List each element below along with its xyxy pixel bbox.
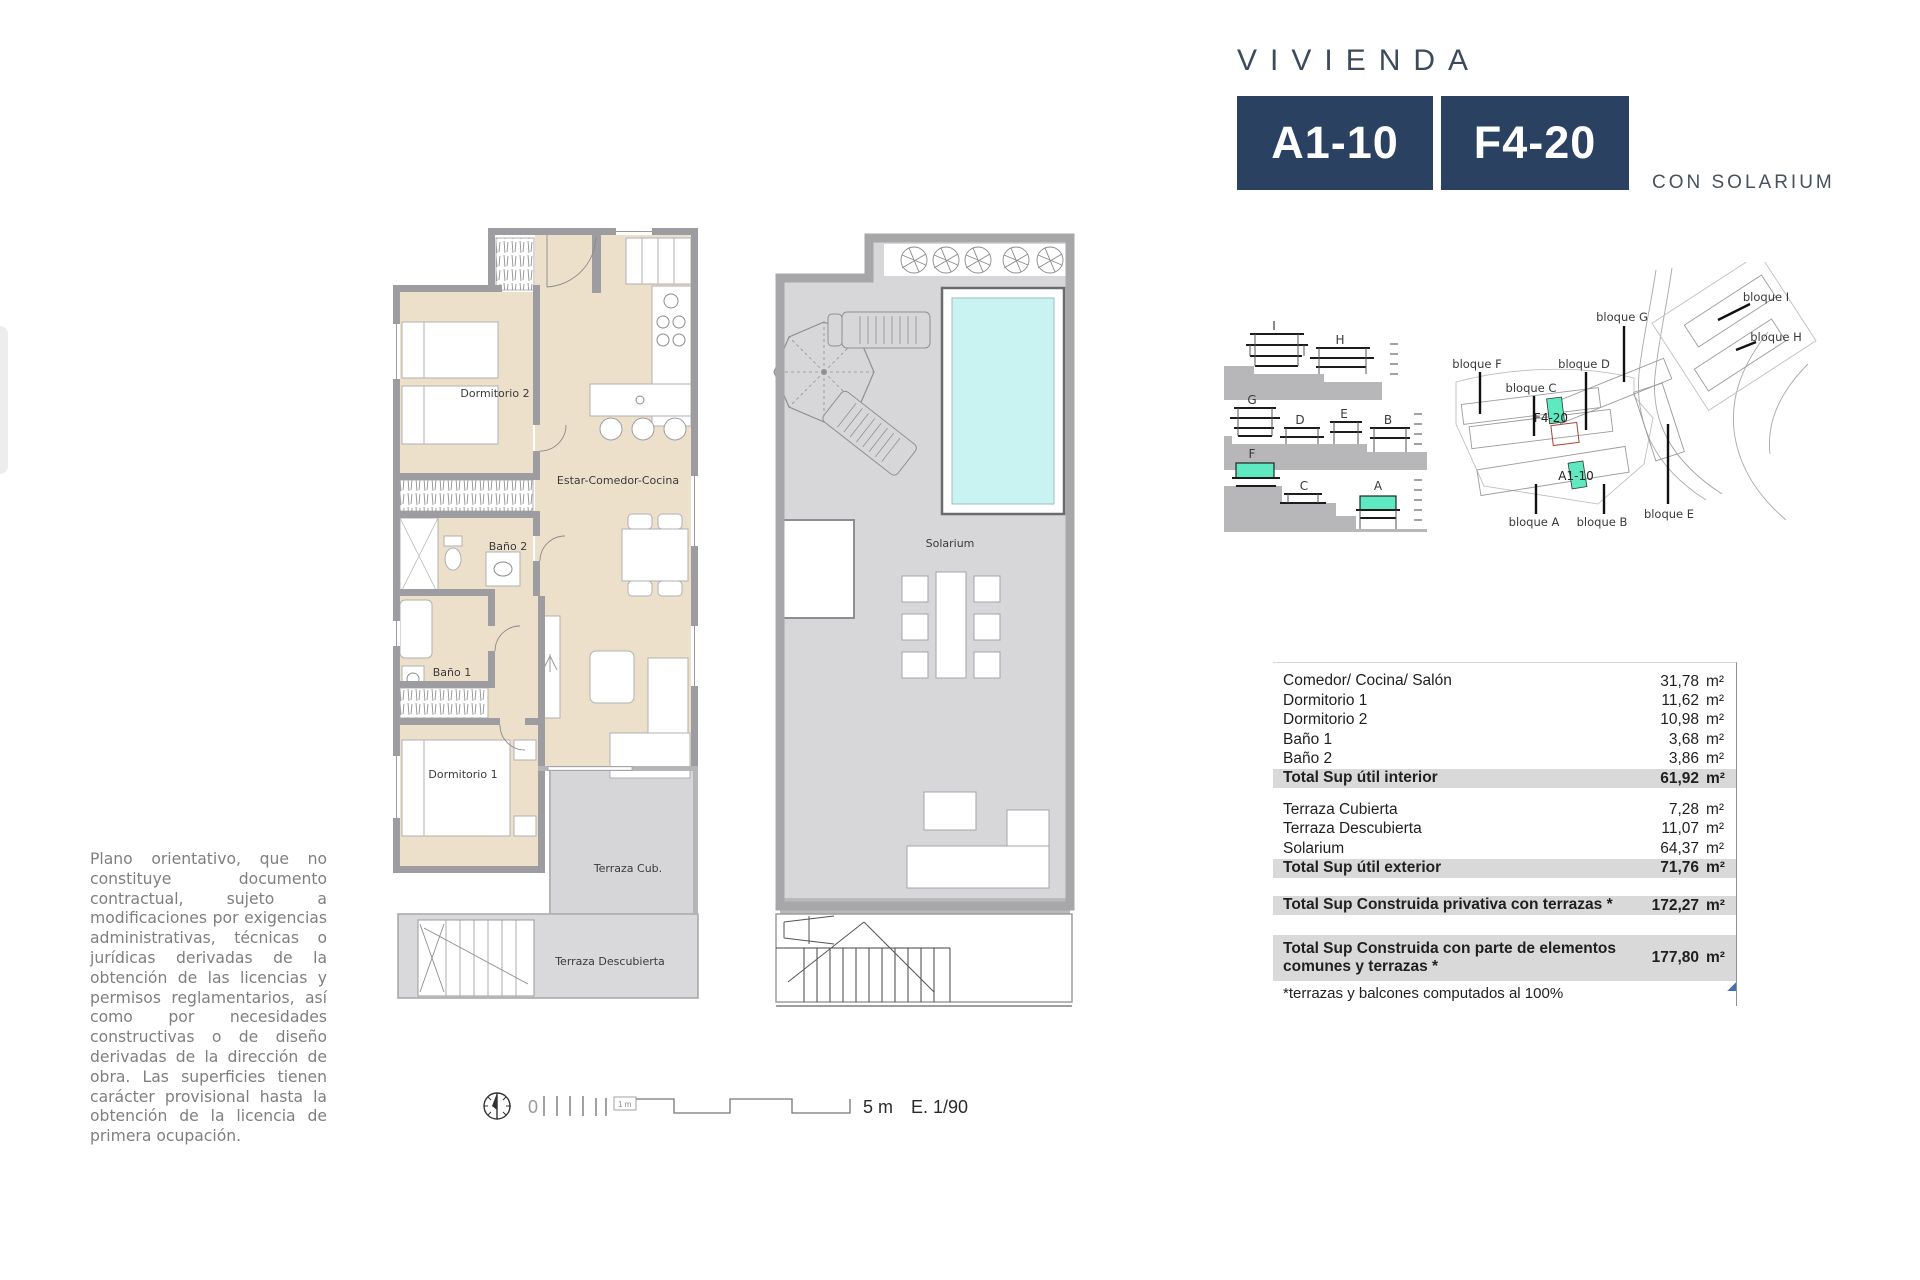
- table-icon: [924, 792, 976, 830]
- dining-table-icon: [622, 529, 688, 581]
- chair-icon: [902, 652, 928, 678]
- room-label-bano2: Baño 2: [489, 540, 527, 553]
- compass-icon: [484, 1093, 511, 1119]
- block-label: D: [1295, 413, 1304, 427]
- stairs-icon: [418, 920, 534, 996]
- toilet-icon: [445, 548, 461, 570]
- tree-icon: [1003, 247, 1029, 273]
- scale-one-meter-label: 1 m: [618, 1100, 632, 1109]
- tree-icon: [1037, 247, 1063, 273]
- chair-icon: [902, 614, 928, 640]
- chair-icon: [902, 576, 928, 602]
- closet-icon: [496, 238, 534, 290]
- scale-ratio: E. 1/90: [911, 1097, 968, 1117]
- table-row-total-privativa: Total Sup Construida privativa con terra…: [1273, 896, 1736, 915]
- table-row: Dormitorio 210,98m²: [1273, 711, 1736, 730]
- burner-icon: [657, 316, 669, 328]
- room-label-estar: Estar-Comedor-Cocina: [557, 474, 679, 487]
- solarium-stairs: [776, 898, 1072, 1006]
- block-label: bloque C: [1506, 381, 1557, 395]
- unit-badge-a1-10: A1-10: [1237, 96, 1433, 190]
- site-plan: bloque I bloque H bloque G bloque D bloq…: [1448, 262, 1818, 562]
- table-row: Baño 13,68m²: [1273, 730, 1736, 749]
- burner-icon: [673, 334, 685, 346]
- table-footnote: *terrazas y balcones computados al 100%: [1273, 981, 1736, 1002]
- chair-icon: [974, 576, 1000, 602]
- elevation-diagrams: I H G D E B: [1222, 320, 1434, 532]
- table-row: Comedor/ Cocina/ Salón31,78m²: [1273, 672, 1736, 691]
- burner-icon: [657, 334, 669, 346]
- block-label: F: [1249, 447, 1256, 461]
- unit-badge-f4-20: F4-20: [1441, 96, 1629, 190]
- block-label: bloque A: [1509, 515, 1560, 529]
- chair-icon: [658, 581, 682, 596]
- table-row: Dormitorio 111,62m²: [1273, 691, 1736, 710]
- elevation-row-1: I H: [1224, 320, 1398, 400]
- sun-lounger-icon: [828, 312, 930, 348]
- page-title: VIVIENDA: [1237, 44, 1481, 78]
- disclaimer-text: Plano orientativo, que no constituye doc…: [90, 850, 327, 1147]
- tree-icon: [965, 247, 991, 273]
- tree-icon: [933, 247, 959, 273]
- stair-void: [780, 520, 854, 618]
- unit-secondary-label: F4-20: [1474, 117, 1597, 169]
- plan-sheet: VIVIENDA A1-10 F4-20 CON SOLARIUM: [0, 0, 1920, 1280]
- floor-plan-interior: Dormitorio 2 Estar-Comedor-Cocina Baño 2…: [390, 226, 708, 1018]
- block-label: B: [1384, 413, 1392, 427]
- block-label: bloque H: [1750, 330, 1802, 344]
- chair-icon: [628, 514, 652, 529]
- table-row: Baño 23,86m²: [1273, 750, 1736, 769]
- table-row: Terraza Cubierta7,28m²: [1273, 800, 1736, 819]
- chair-icon: [974, 652, 1000, 678]
- table-row-total-exterior: Total Sup útil exterior71,76m²: [1273, 859, 1736, 878]
- armchair-icon: [590, 651, 634, 703]
- table-row-total-interior: Total Sup útil interior61,92m²: [1273, 769, 1736, 788]
- room-label-dormitorio1: Dormitorio 1: [428, 768, 497, 781]
- tree-icon: [901, 247, 927, 273]
- chair-icon: [974, 614, 1000, 640]
- stool-icon: [664, 418, 686, 440]
- leader-lines: [1480, 304, 1756, 514]
- toilet-icon: [444, 536, 462, 546]
- table-icon: [936, 572, 966, 678]
- table-row: Terraza Descubierta11,07m²: [1273, 820, 1736, 839]
- outlined-unit: [1551, 422, 1579, 445]
- burner-icon: [673, 316, 685, 328]
- block-label: bloque B: [1577, 515, 1628, 529]
- scale-one-meter-box: 1 m: [614, 1097, 636, 1110]
- room-label-bano1: Baño 1: [433, 666, 471, 679]
- site-roads: [1638, 268, 1808, 520]
- unit-primary-label: A1-10: [1271, 117, 1399, 169]
- scale-five-meters: 5 m: [863, 1097, 893, 1117]
- room-label-dormitorio2: Dormitorio 2: [460, 387, 529, 400]
- subtitle-con-solarium: CON SOLARIUM: [1652, 172, 1835, 194]
- sofa-icon: [648, 658, 688, 733]
- planting-strip: [884, 244, 1068, 276]
- scale-ticks: [544, 1096, 606, 1116]
- block-label: H: [1335, 333, 1344, 347]
- sofa-icon: [610, 733, 690, 778]
- unit-label-f4-20: F4-20: [1534, 411, 1568, 425]
- scale-zero: 0: [528, 1097, 538, 1117]
- room-label-terraza-desc: Terraza Descubierta: [554, 955, 665, 968]
- nightstand: [514, 816, 536, 836]
- room-label-solarium: Solarium: [926, 537, 975, 550]
- sink-icon: [664, 294, 678, 308]
- pergola-dining-set: [902, 572, 1000, 678]
- wardrobe-icon: [400, 688, 488, 718]
- chair-icon: [628, 581, 652, 596]
- page-edge-decoration: [0, 326, 8, 474]
- floor-plan-solarium: Solarium: [764, 222, 1084, 1017]
- block-label: G: [1247, 393, 1256, 407]
- block-label: bloque I: [1743, 290, 1789, 304]
- room-label-terraza-cub: Terraza Cub.: [593, 862, 662, 875]
- highlighted-unit-f: [1236, 463, 1274, 478]
- pool: [942, 288, 1064, 514]
- block-label: I: [1272, 320, 1276, 333]
- highlighted-unit-a: [1360, 496, 1396, 510]
- wardrobe-icon: [400, 480, 533, 511]
- bed-icon: [402, 740, 510, 836]
- block-label: bloque G: [1596, 310, 1648, 324]
- block-label: E: [1340, 407, 1348, 421]
- area-table: Comedor/ Cocina/ Salón31,78m² Dormitorio…: [1273, 662, 1737, 1006]
- scale-bar-steps: [636, 1099, 850, 1113]
- bed-icon: [402, 322, 498, 378]
- bathtub-icon: [400, 600, 432, 658]
- block-label: C: [1300, 479, 1308, 493]
- block-label: bloque E: [1644, 507, 1694, 521]
- stool-icon: [600, 418, 622, 440]
- site-block-labels: bloque I bloque H bloque G bloque D bloq…: [1452, 290, 1801, 529]
- stool-icon: [632, 418, 654, 440]
- table-row: Solarium64,37m²: [1273, 839, 1736, 858]
- block-label: bloque F: [1452, 357, 1501, 371]
- unit-label-a1-10: A1-10: [1558, 469, 1593, 483]
- chair-icon: [658, 514, 682, 529]
- block-label: bloque D: [1558, 357, 1610, 371]
- table-row-total-comunes: Total Sup Construida con parte de elemen…: [1273, 935, 1736, 981]
- block-label: A: [1374, 479, 1383, 493]
- scale-bar: 0 1 m 5 m E. 1/90: [478, 1086, 978, 1131]
- sofa-icon: [907, 846, 1049, 888]
